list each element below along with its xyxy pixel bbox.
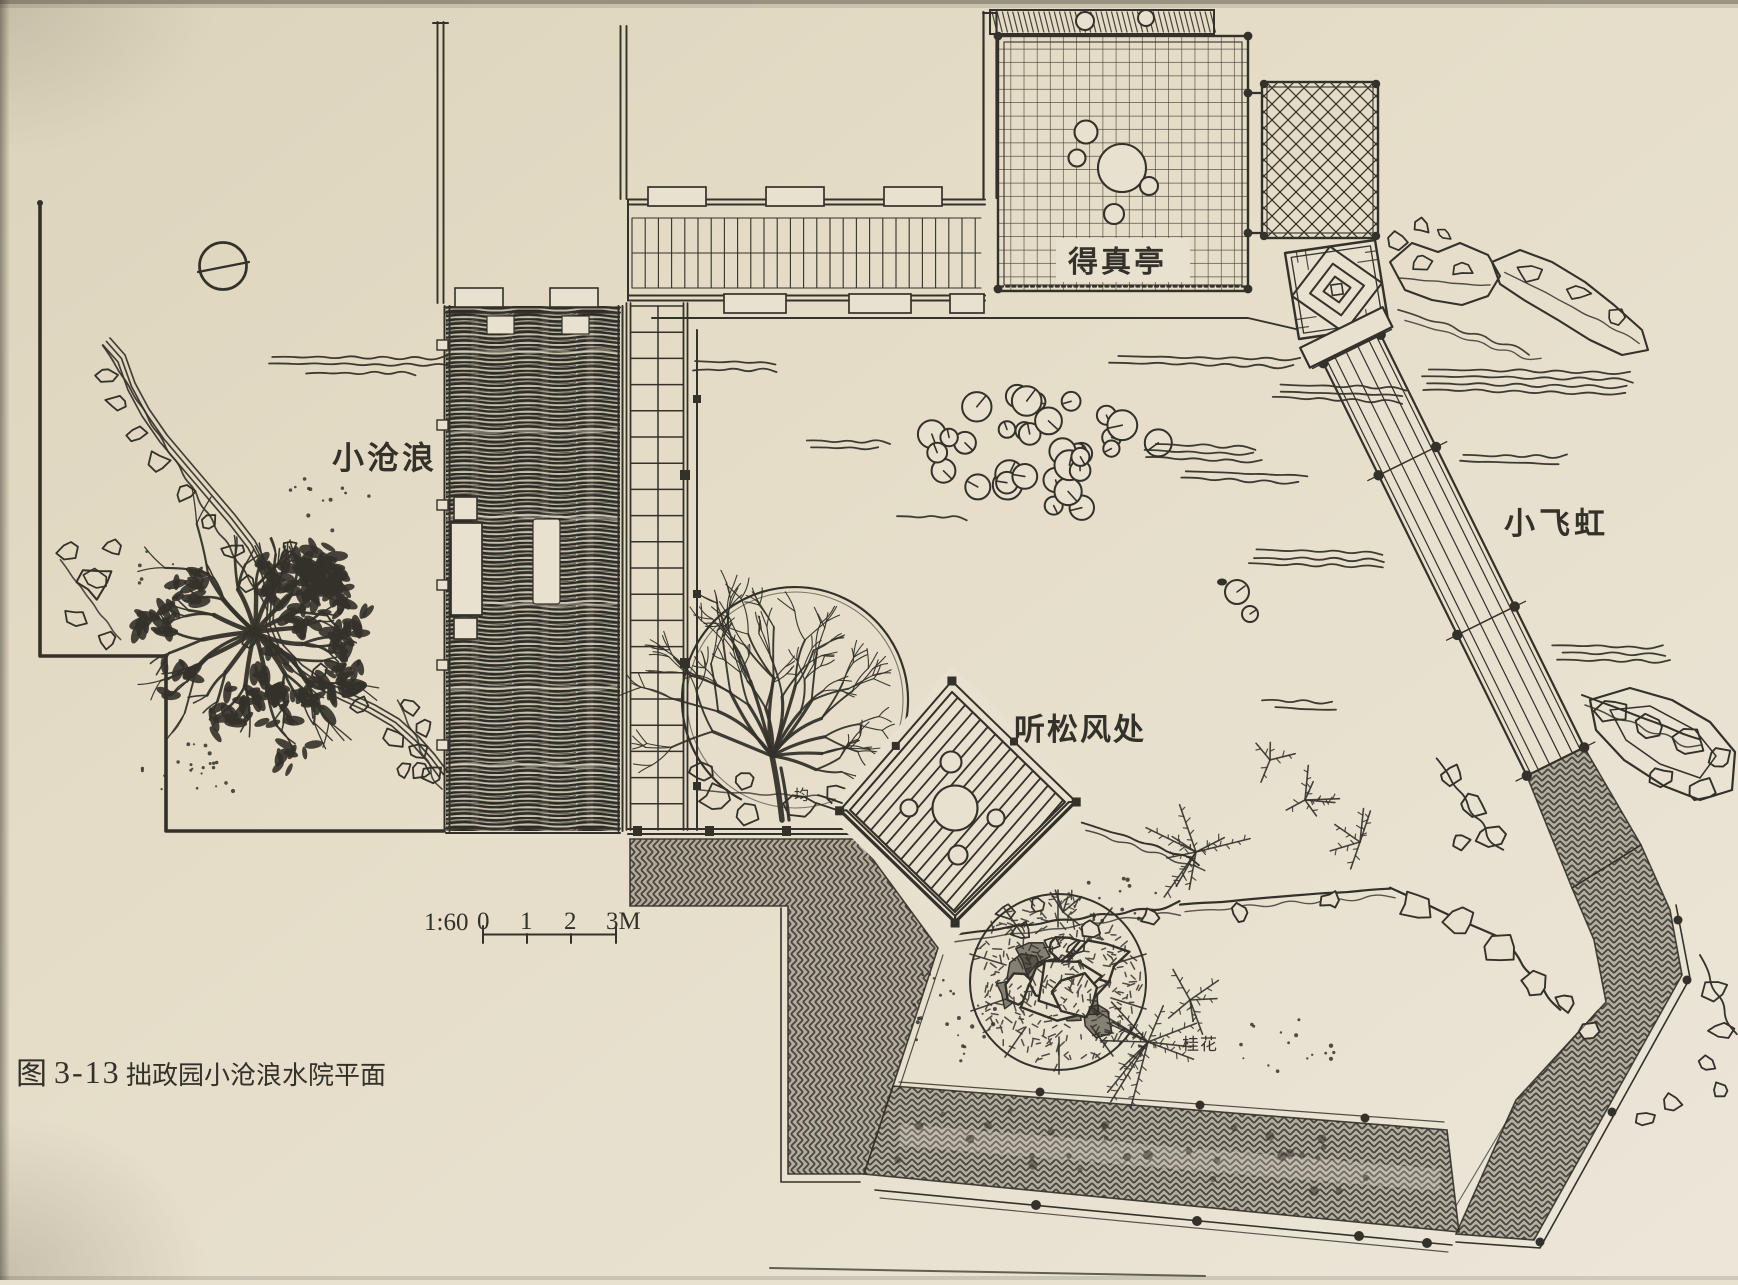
svg-text:2: 2	[564, 908, 577, 935]
svg-text:3M: 3M	[606, 908, 641, 935]
svg-text:1:60: 1:60	[424, 909, 468, 936]
svg-text:1: 1	[520, 908, 533, 935]
